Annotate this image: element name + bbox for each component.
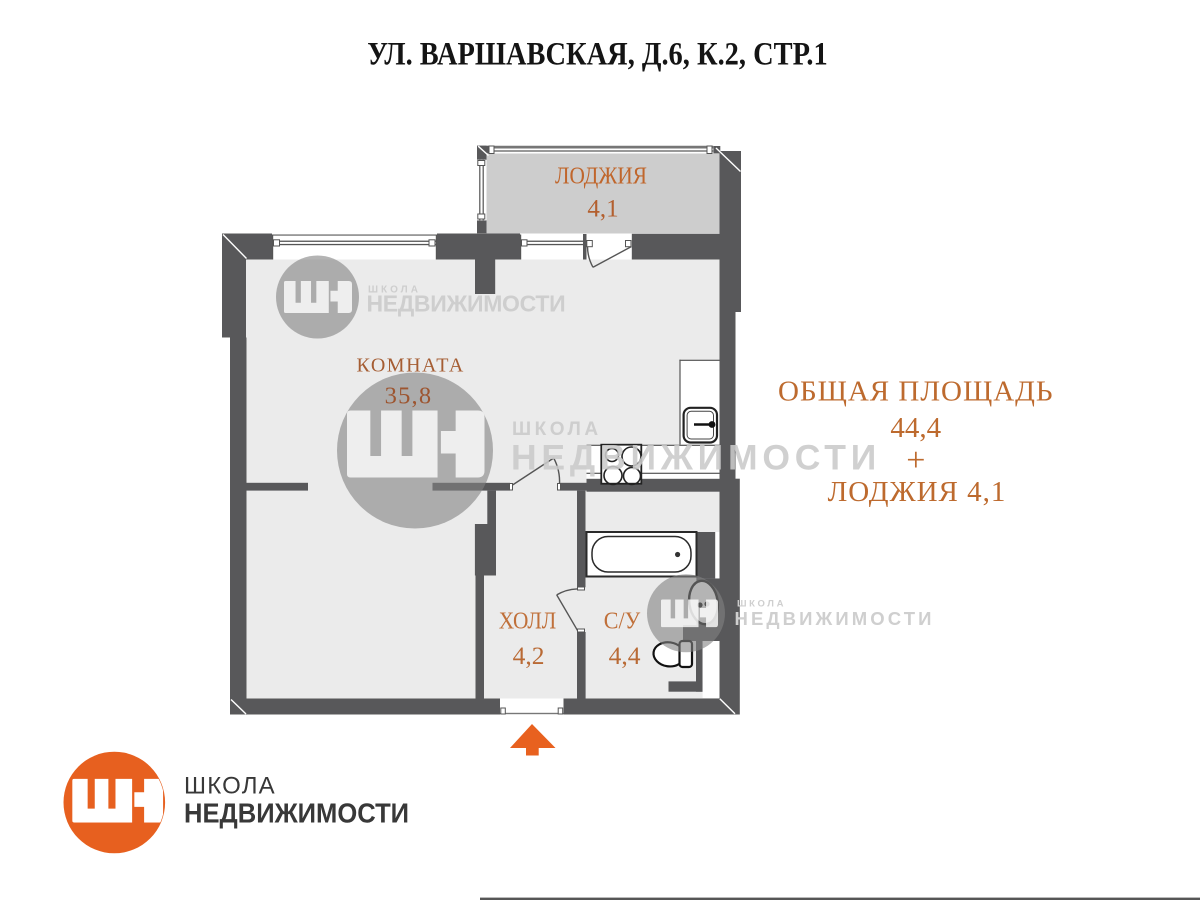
svg-text:НЕДВИЖИМОСТИ: НЕДВИЖИМОСТИ [511, 438, 881, 478]
svg-text:+: + [906, 442, 925, 479]
svg-text:44,4: 44,4 [890, 412, 941, 444]
svg-text:4,2: 4,2 [513, 641, 545, 670]
svg-text:УЛ. ВАРШАВСКАЯ, Д.6, К.2, СТР.: УЛ. ВАРШАВСКАЯ, Д.6, К.2, СТР.1 [367, 36, 827, 72]
svg-text:4,1: 4,1 [587, 196, 618, 223]
svg-text:ХОЛЛ: ХОЛЛ [499, 607, 557, 634]
svg-text:ЛОДЖИЯ 4,1: ЛОДЖИЯ 4,1 [828, 476, 1007, 508]
svg-text:КОМНАТА: КОМНАТА [357, 355, 465, 377]
svg-text:НЕДВИЖИМОСТИ: НЕДВИЖИМОСТИ [735, 608, 935, 629]
svg-text:ШКОЛА: ШКОЛА [184, 773, 276, 800]
svg-text:ЛОДЖИЯ: ЛОДЖИЯ [555, 162, 647, 189]
svg-text:НЕДВИЖИМОСТИ: НЕДВИЖИМОСТИ [367, 291, 566, 317]
svg-text:НЕДВИЖИМОСТИ: НЕДВИЖИМОСТИ [184, 797, 409, 828]
svg-text:35,8: 35,8 [385, 383, 433, 410]
svg-text:4,4: 4,4 [609, 641, 641, 670]
svg-text:С/У: С/У [604, 608, 641, 635]
svg-text:ОБЩАЯ ПЛОЩАДЬ: ОБЩАЯ ПЛОЩАДЬ [778, 376, 1054, 408]
